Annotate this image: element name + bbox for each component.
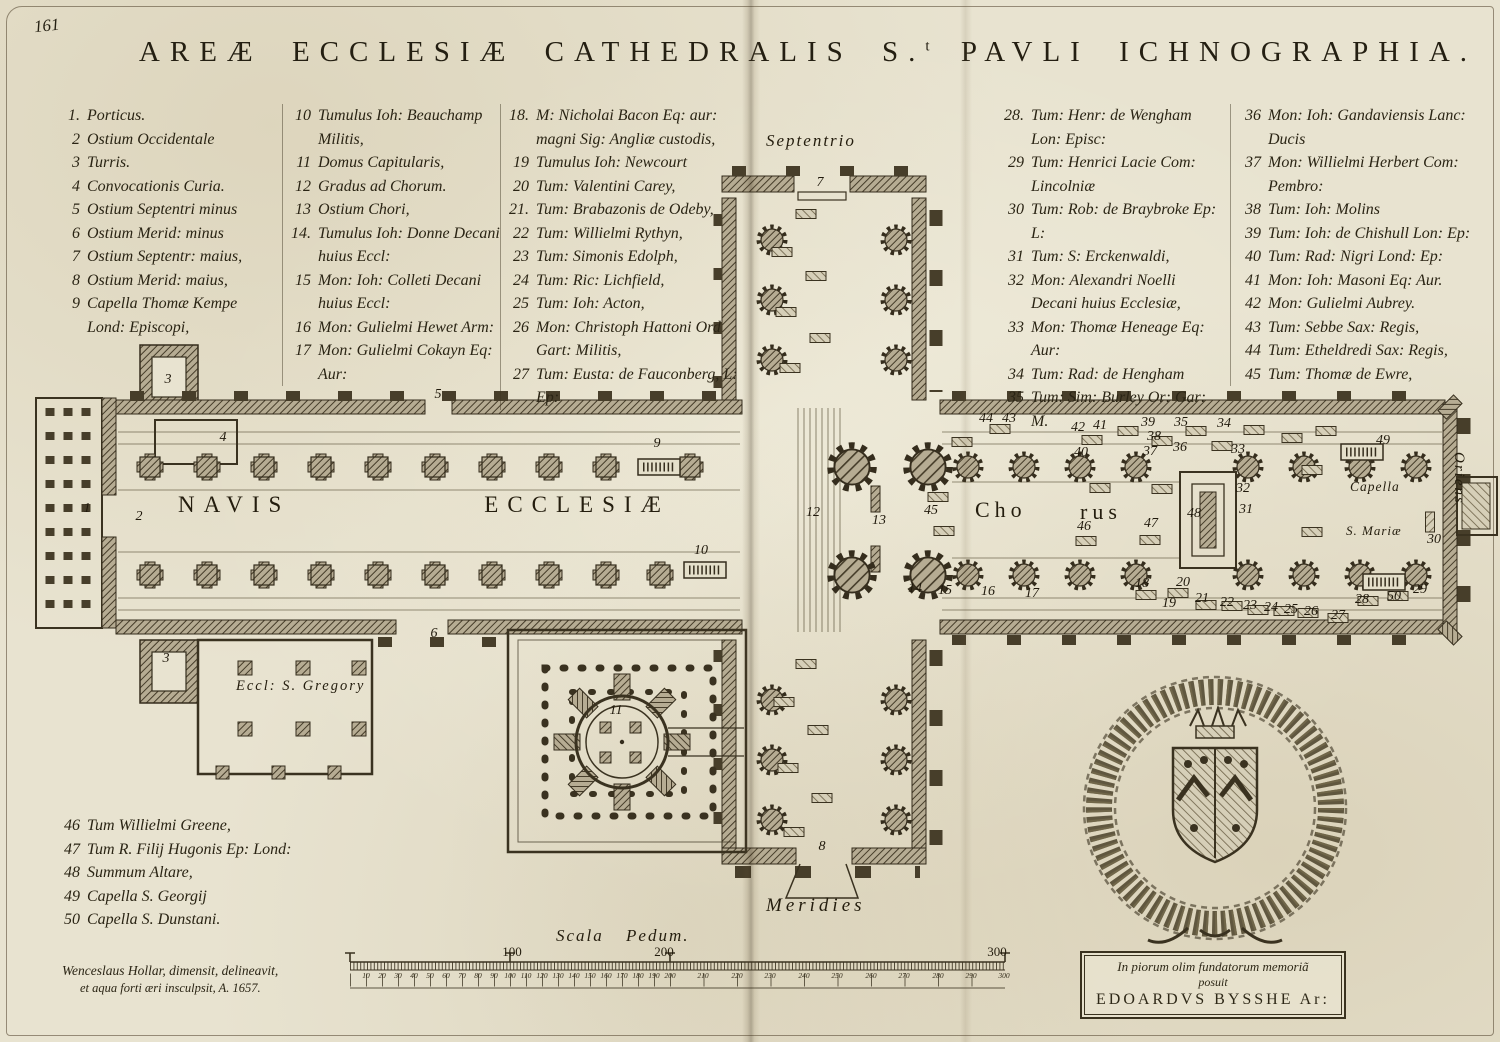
plan-marker: 4 [220, 430, 227, 446]
legend-entry-text: Capella S. Dunstani. [87, 908, 318, 932]
plan-marker: 24 [1264, 600, 1278, 616]
legend-entry-number: 37 [1239, 151, 1261, 198]
label-s-mariae: S. Mariæ [1346, 523, 1402, 539]
legend-entry: 41 Mon: Ioh: Masoni Eq: Aur. [1239, 269, 1491, 293]
legend-entry: 42 Mon: Gulielmi Aubrey. [1239, 292, 1491, 316]
scale-tick-label: 190 [648, 971, 659, 980]
plan-marker: 44 [979, 411, 993, 427]
legend-entry-text: Tumulus Ioh: Beauchamp Militis, [318, 104, 501, 151]
legend-entry-number: 11 [289, 151, 311, 175]
legend-entry-text: M: Nicholai Bacon Eq: aur: magni Sig: An… [536, 104, 739, 151]
scale-tick-label: 150 [584, 971, 595, 980]
legend-entry: 47 Tum R. Filij Hugonis Ep: Lond: [58, 838, 318, 862]
scale-major-label: 200 [654, 944, 674, 960]
legend-entry: 11 Domus Capitularis, [289, 151, 501, 175]
plan-marker: 38 [1147, 429, 1161, 445]
legend-entry-text: Mon: Alexandri Noelli Decani huius Eccle… [1031, 269, 1224, 316]
legend-entry-number: 6 [58, 222, 80, 246]
engraver-signature: Wenceslaus Hollar, dimensit, delineavit,… [62, 962, 278, 997]
scale-tick-label: 290 [965, 971, 976, 980]
scale-tick-label: 90 [490, 971, 498, 980]
legend-entry: 13 Ostium Chori, [289, 198, 501, 222]
cartouche-line-1: In piorum olim fundatorum memoriã [1089, 959, 1337, 975]
plan-marker: 10 [694, 543, 708, 559]
plan-marker: 12 [806, 505, 820, 521]
legend-entry-number: 8 [58, 269, 80, 293]
scale-tick-label: 20 [378, 971, 386, 980]
legend-entry-text: Tum: Ioh: Acton, [536, 292, 739, 316]
legend-entry-number: 3 [58, 151, 80, 175]
label-septentrio: Septentrio [766, 131, 856, 151]
scale-tick-label: 80 [474, 971, 482, 980]
legend-entry-number: 49 [58, 885, 80, 909]
plan-marker: 26 [1304, 604, 1318, 620]
plan-marker: 29 [1413, 582, 1427, 598]
legend-entry-text: Capella Thomæ Kempe Lond: Episcopi, [87, 292, 276, 339]
legend-entry-number: 17 [289, 339, 311, 386]
legend-entry: 21. Tum: Brabazonis de Odeby, [507, 198, 739, 222]
scale-tick-label: 110 [521, 971, 532, 980]
laurel-wreath-emblem [1084, 677, 1346, 942]
plan-marker: 48 [1187, 506, 1201, 522]
legend-entry-text: Ostium Septentr: maius, [87, 245, 276, 269]
plan-marker: 50 [1387, 589, 1401, 605]
legend-entry: 43 Tum: Sebbe Sax: Regis, [1239, 316, 1491, 340]
scale-tick-label: 280 [932, 971, 943, 980]
scale-tick-label: 250 [831, 971, 842, 980]
legend-entry: 39 Tum: Ioh: de Chishull Lon: Ep: [1239, 222, 1491, 246]
legend-entry: 33 Mon: Thomæ Heneage Eq: Aur: [1002, 316, 1224, 363]
legend-entry-number: 41 [1239, 269, 1261, 293]
legend-entry-text: Tum: Eusta: de Fauconberg, L: Ep: [536, 363, 739, 410]
legend-entry-number: 27 [507, 363, 529, 410]
legend-entry: 36 Mon: Ioh: Gandaviensis Lanc: Ducis [1239, 104, 1491, 151]
cartouche-line-3: EDOARDVS BYSSHE Ar: [1089, 991, 1337, 1009]
legend-column-3: 18. M: Nicholai Bacon Eq: aur: magni Sig… [500, 104, 739, 410]
legend-entry: 35 Tum: Sim: Burley Or: Gar: M. [1002, 386, 1224, 433]
legend-entry: 40 Tum: Rad: Nigri Lond: Ep: [1239, 245, 1491, 269]
legend-entry: 32 Mon: Alexandri Noelli Decani huius Ec… [1002, 269, 1224, 316]
legend-entry-text: Tum: Thomæ de Ewre, [1268, 363, 1491, 387]
legend-entry-number: 22 [507, 222, 529, 246]
plate-title-main: AREÆ ECCLESIÆ CATHEDRALIS S. [139, 36, 926, 68]
plan-marker: 3 [163, 651, 170, 667]
engraved-plate: 161 AREÆ ECCLESIÆ CATHEDRALIS S.t PAVLI … [0, 0, 1500, 1042]
legend-column-5: 36 Mon: Ioh: Gandaviensis Lanc: Ducis 37… [1230, 104, 1491, 386]
scale-bar-title: Scala Pedum. [556, 926, 689, 946]
plan-marker: 28 [1355, 592, 1369, 608]
legend-entry-text: Turris. [87, 151, 276, 175]
legend-entry-text: Mon: Christoph Hattoni Ord Gart: Militis… [536, 316, 739, 363]
legend-entry: 31 Tum: S: Erckenwaldi, [1002, 245, 1224, 269]
coat-of-arms [1173, 708, 1257, 862]
scale-tick-label: 220 [731, 971, 742, 980]
dedication-cartouche: In piorum olim fundatorum memoriã posuit… [1080, 951, 1346, 1019]
legend-entry: 48 Summum Altare, [58, 861, 318, 885]
plan-marker: 11 [610, 703, 623, 719]
scale-tick-label: 100 [504, 971, 515, 980]
legend-entry-number: 24 [507, 269, 529, 293]
legend-entry: 44 Tum: Etheldredi Sax: Regis, [1239, 339, 1491, 363]
scale-tick-label: 30 [394, 971, 402, 980]
plan-marker: 8 [819, 839, 826, 855]
legend-entry-text: Ostium Merid: minus [87, 222, 276, 246]
legend-entry-number: 47 [58, 838, 80, 862]
legend-entry-number: 25 [507, 292, 529, 316]
legend-entry: 46 Tum Willielmi Greene, [58, 814, 318, 838]
legend-entry-number: 38 [1239, 198, 1261, 222]
legend-entry-number: 48 [58, 861, 80, 885]
legend-entry-number: 14. [289, 222, 311, 269]
legend-entry: 49 Capella S. Georgij [58, 885, 318, 909]
legend-entry-text: Ostium Occidentale [87, 128, 276, 152]
legend-entry-text: Tum: Simonis Edolph, [536, 245, 739, 269]
scale-tick-label: 40 [410, 971, 418, 980]
legend-entry-text: Tum: Ioh: de Chishull Lon: Ep: [1268, 222, 1491, 246]
legend-entry-text: Tum: Ric: Lichfield, [536, 269, 739, 293]
scale-major-label: 100 [502, 944, 522, 960]
legend-entry-number: 30 [1002, 198, 1024, 245]
plan-marker: 45 [924, 503, 938, 519]
plan-marker: 9 [654, 436, 661, 452]
legend-entry: 3 Turris. [58, 151, 276, 175]
legend-entry: 12 Gradus ad Chorum. [289, 175, 501, 199]
signature-line-2: et aqua forti æri insculpsit, A. 1657. [62, 980, 278, 997]
legend-entry-number: 4 [58, 175, 80, 199]
legend-entry-number: 15 [289, 269, 311, 316]
legend-entry-text: Tumulus Ioh: Donne Decani huius Eccl: [318, 222, 501, 269]
signature-line-1: Wenceslaus Hollar, dimensit, delineavit, [62, 962, 278, 980]
legend-entry-number: 28. [1002, 104, 1024, 151]
legend-entry-text: Gradus ad Chorum. [318, 175, 501, 199]
legend-entry-text: Tum: Henr: de Wengham Lon: Episc: [1031, 104, 1224, 151]
legend-entry-text: Tum: Valentini Carey, [536, 175, 739, 199]
plan-marker: 20 [1176, 575, 1190, 591]
plan-marker: 49 [1376, 433, 1390, 449]
legend-entry-text: Tum: Sim: Burley Or: Gar: M. [1031, 386, 1224, 433]
legend-entry-number: 23 [507, 245, 529, 269]
legend-entry-number: 16 [289, 316, 311, 340]
legend-entry-text: Tumulus Ioh: Newcourt [536, 151, 739, 175]
legend-entry: 8 Ostium Merid: maius, [58, 269, 276, 293]
legend-entry: 7 Ostium Septentr: maius, [58, 245, 276, 269]
legend-entry: 14. Tumulus Ioh: Donne Decani huius Eccl… [289, 222, 501, 269]
plan-marker: 30 [1427, 532, 1441, 548]
legend-entry: 25 Tum: Ioh: Acton, [507, 292, 739, 316]
scale-tick-label: 300 [998, 971, 1009, 980]
label-ecclesiae: ECCLESIÆ [484, 492, 670, 518]
plan-marker: 23 [1243, 598, 1257, 614]
scale-tick-label: 200 [664, 971, 675, 980]
legend-entry-number: 7 [58, 245, 80, 269]
plan-marker: 39 [1141, 415, 1155, 431]
legend-entry-number: 26 [507, 316, 529, 363]
label-chorus-left: Cho [975, 497, 1027, 523]
legend-entry-number: 50 [58, 908, 80, 932]
legend-entry-number: 33 [1002, 316, 1024, 363]
legend-entry-text: Tum: Rob: de Braybroke Ep: L: [1031, 198, 1224, 245]
legend-entry: 16 Mon: Gulielmi Hewet Arm: [289, 316, 501, 340]
legend-entry-number: 29 [1002, 151, 1024, 198]
legend-entry: 18. M: Nicholai Bacon Eq: aur: magni Sig… [507, 104, 739, 151]
legend-entry-text: Tum: Sebbe Sax: Regis, [1268, 316, 1491, 340]
legend-entry: 9 Capella Thomæ Kempe Lond: Episcopi, [58, 292, 276, 339]
plan-marker: 47 [1144, 516, 1158, 532]
scale-tick-label: 170 [616, 971, 627, 980]
legend-entry: 6 Ostium Merid: minus [58, 222, 276, 246]
scale-tick-label: 140 [568, 971, 579, 980]
legend-entry-number: 32 [1002, 269, 1024, 316]
plan-marker: 1 [84, 501, 91, 517]
plan-marker: 35 [1174, 415, 1188, 431]
legend-column-2: 10 Tumulus Ioh: Beauchamp Militis, 11 Do… [282, 104, 501, 386]
plan-marker: 34 [1217, 416, 1231, 432]
legend-entry-number: 18. [507, 104, 529, 151]
legend-entry: 29 Tum: Henrici Lacie Com: Lincolniæ [1002, 151, 1224, 198]
legend-entry: 24 Tum: Ric: Lichfield, [507, 269, 739, 293]
legend-column-1: 1. Porticus. 2 Ostium Occidentale 3 Turr… [58, 104, 276, 339]
plan-marker: 16 [981, 584, 995, 600]
scale-tick-label: 260 [865, 971, 876, 980]
label-navis: NAVIS [178, 492, 290, 518]
legend-entry: 34 Tum: Rad: de Hengham [1002, 363, 1224, 387]
cartouche-line-2: posuit [1089, 975, 1337, 990]
legend-entry: 2 Ostium Occidentale [58, 128, 276, 152]
legend-entry: 10 Tumulus Ioh: Beauchamp Militis, [289, 104, 501, 151]
scale-tick-label: 240 [798, 971, 809, 980]
scale-tick-label: 230 [764, 971, 775, 980]
legend-entry: 30 Tum: Rob: de Braybroke Ep: L: [1002, 198, 1224, 245]
plan-marker: 7 [817, 175, 824, 191]
plan-marker: 22 [1220, 595, 1234, 611]
legend-entry-number: 1. [58, 104, 80, 128]
legend-entry-number: 43 [1239, 316, 1261, 340]
legend-entry: 50 Capella S. Dunstani. [58, 908, 318, 932]
plan-marker: 42 [1071, 420, 1085, 436]
legend-entry: 23 Tum: Simonis Edolph, [507, 245, 739, 269]
legend-entry: 1. Porticus. [58, 104, 276, 128]
legend-entry-text: Tum Willielmi Greene, [87, 814, 318, 838]
plan-marker: 3 [165, 372, 172, 388]
label-capella: Capella [1350, 479, 1400, 495]
plan-marker: 17 [1025, 586, 1039, 602]
scale-tick-label: 70 [458, 971, 466, 980]
plan-marker: 31 [1239, 502, 1253, 518]
plan-marker: 15 [938, 583, 952, 599]
legend-entry-number: 34 [1002, 363, 1024, 387]
legend-entry-number: 36 [1239, 104, 1261, 151]
plan-marker: 6 [431, 626, 438, 642]
legend-entry-text: Mon: Ioh: Masoni Eq: Aur. [1268, 269, 1491, 293]
legend-entry-text: Tum: Willielmi Rythyn, [536, 222, 739, 246]
legend-column-4: 28. Tum: Henr: de Wengham Lon: Episc: 29… [1002, 104, 1224, 433]
legend-entry-number: 2 [58, 128, 80, 152]
legend-entry-text: Porticus. [87, 104, 276, 128]
legend-entry-number: 42 [1239, 292, 1261, 316]
legend-entry-text: Capella S. Georgij [87, 885, 318, 909]
plan-marker: 32 [1236, 481, 1250, 497]
plan-marker: 36 [1173, 440, 1187, 456]
label-meridies: Meridies [766, 895, 866, 917]
plan-marker: 25 [1284, 602, 1298, 618]
plan-marker: 19 [1162, 596, 1176, 612]
scale-tick-label: 210 [697, 971, 708, 980]
legend-entry: 37 Mon: Willielmi Herbert Com: Pembro: [1239, 151, 1491, 198]
legend-entry: 17 Mon: Gulielmi Cokayn Eq: Aur: [289, 339, 501, 386]
legend-entry-text: Domus Capitularis, [318, 151, 501, 175]
plan-marker: 14 [908, 581, 922, 597]
legend-entry-text: Convocationis Curia. [87, 175, 276, 199]
label-navis-ecclesiae: NAVIS ECCLESIÆ [178, 492, 670, 518]
legend-entry-number: 21. [507, 198, 529, 222]
legend-entry-text: Tum: Etheldredi Sax: Regis, [1268, 339, 1491, 363]
legend-column-extra: 46 Tum Willielmi Greene, 47 Tum R. Filij… [58, 814, 318, 932]
legend-entry: 38 Tum: Ioh: Molins [1239, 198, 1491, 222]
legend-entry-number: 13 [289, 198, 311, 222]
legend-entry-number: 10 [289, 104, 311, 151]
legend-entry: 27 Tum: Eusta: de Fauconberg, L: Ep: [507, 363, 739, 410]
scale-tick-label: 130 [552, 971, 563, 980]
plan-marker: 13 [872, 513, 886, 529]
legend-entry-number: 44 [1239, 339, 1261, 363]
plate-title: AREÆ ECCLESIÆ CATHEDRALIS S.t PAVLI ICHN… [128, 36, 1488, 69]
legend-entry-text: Mon: Gulielmi Hewet Arm: [318, 316, 501, 340]
legend-entry-text: Mon: Willielmi Herbert Com: Pembro: [1268, 151, 1491, 198]
legend-entry-number: 39 [1239, 222, 1261, 246]
plate-title-rest: PAVLI ICHNOGRAPHIA. [932, 36, 1477, 68]
legend-entry-number: 19 [507, 151, 529, 175]
legend-entry-text: Ostium Septentri minus [87, 198, 276, 222]
plan-marker: 2 [136, 509, 143, 525]
legend-entry-text: Tum R. Filij Hugonis Ep: Lond: [87, 838, 318, 862]
legend-entry-text: Mon: Ioh: Gandaviensis Lanc: Ducis [1268, 104, 1491, 151]
plan-marker: 5 [435, 387, 442, 403]
legend-entry: 5 Ostium Septentri minus [58, 198, 276, 222]
legend-entry-text: Tum: Henrici Lacie Com: Lincolniæ [1031, 151, 1224, 198]
legend-entry: 26 Mon: Christoph Hattoni Ord Gart: Mili… [507, 316, 739, 363]
label-oriens: Oriens [1450, 452, 1467, 505]
legend-entry-text: Mon: Gulielmi Cokayn Eq: Aur: [318, 339, 501, 386]
legend-entry-text: Mon: Gulielmi Aubrey. [1268, 292, 1491, 316]
scale-major-label: 300 [987, 944, 1007, 960]
legend-entry-text: Ostium Merid: maius, [87, 269, 276, 293]
legend-entry-number: 46 [58, 814, 80, 838]
scale-tick-label: 180 [632, 971, 643, 980]
plan-marker: 27 [1331, 608, 1345, 624]
legend-entry: 15 Mon: Ioh: Colleti Decani huius Eccl: [289, 269, 501, 316]
legend-entry-text: Mon: Thomæ Heneage Eq: Aur: [1031, 316, 1224, 363]
plan-marker: 46 [1077, 519, 1091, 535]
plan-marker: 40 [1074, 445, 1088, 461]
legend-entry: 22 Tum: Willielmi Rythyn, [507, 222, 739, 246]
legend-entry: 19 Tumulus Ioh: Newcourt [507, 151, 739, 175]
legend-entry: 28. Tum: Henr: de Wengham Lon: Episc: [1002, 104, 1224, 151]
legend-entry-number: 40 [1239, 245, 1261, 269]
legend-entry-text: Summum Altare, [87, 861, 318, 885]
scale-tick-label: 120 [536, 971, 547, 980]
legend-entry-number: 9 [58, 292, 80, 339]
legend-entry-text: Tum: Rad: Nigri Lond: Ep: [1268, 245, 1491, 269]
legend-entry-number: 45 [1239, 363, 1261, 387]
plan-marker: 43 [1002, 411, 1016, 427]
legend-entry-text: Tum: Rad: de Hengham [1031, 363, 1224, 387]
legend-entry-text: Ostium Chori, [318, 198, 501, 222]
legend-entry-number: 31 [1002, 245, 1024, 269]
legend-entry-number: 20 [507, 175, 529, 199]
plan-marker: 21 [1195, 591, 1209, 607]
plan-marker: 41 [1093, 418, 1107, 434]
legend-entry-number: 5 [58, 198, 80, 222]
legend-entry-text: Tum: S: Erckenwaldi, [1031, 245, 1224, 269]
plan-marker: 18 [1135, 576, 1149, 592]
plan-marker: 33 [1231, 442, 1245, 458]
scale-tick-label: 270 [898, 971, 909, 980]
scale-tick-label: 160 [600, 971, 611, 980]
label-eccl-s-gregory: Eccl: S. Gregory [236, 678, 365, 695]
legend-entry: 45 Tum: Thomæ de Ewre, [1239, 363, 1491, 387]
legend-entry-text: Mon: Ioh: Colleti Decani huius Eccl: [318, 269, 501, 316]
plan-marker: 37 [1143, 444, 1157, 460]
scale-tick-label: 50 [426, 971, 434, 980]
legend-entry: 20 Tum: Valentini Carey, [507, 175, 739, 199]
legend-entry-number: 12 [289, 175, 311, 199]
legend-entry: 4 Convocationis Curia. [58, 175, 276, 199]
scale-tick-label: 10 [362, 971, 370, 980]
page-number: 161 [33, 15, 60, 38]
scale-tick-label: 60 [442, 971, 450, 980]
legend-entry-text: Tum: Ioh: Molins [1268, 198, 1491, 222]
legend-entry-text: Tum: Brabazonis de Odeby, [536, 198, 739, 222]
